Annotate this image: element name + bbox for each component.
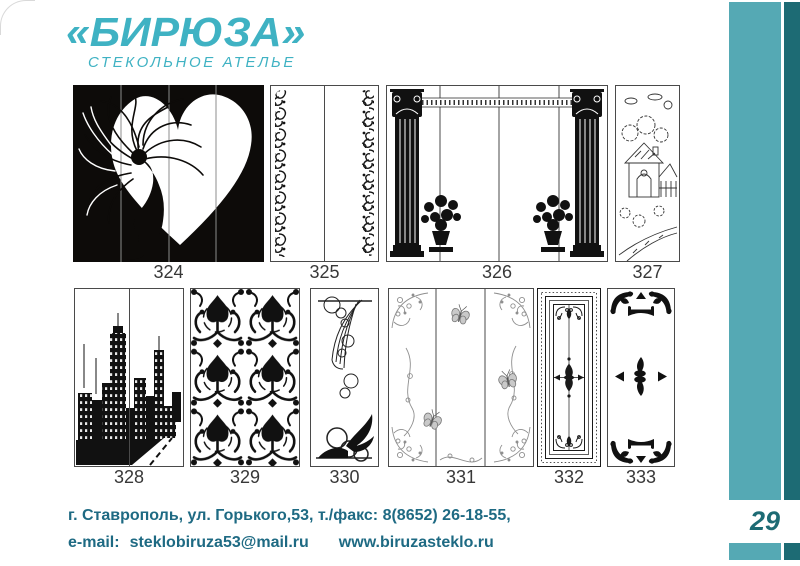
side-stripe-dark-teal <box>784 2 800 560</box>
brand-tagline: СТЕКОЛЬНОЕ АТЕЛЬЕ <box>88 54 296 71</box>
design-number-label: 330 <box>310 468 379 486</box>
design-325-tile: 325 <box>270 85 379 262</box>
contacts-line: e-mail:steklobiruza53@mail.ruwww.biruzas… <box>68 529 628 556</box>
side-stripe-teal <box>729 2 781 560</box>
design-326-tile: 326 <box>386 85 608 262</box>
design-329-image <box>190 288 300 467</box>
page-number: 29 <box>750 506 800 537</box>
design-number-label: 325 <box>270 263 379 281</box>
page-corner-decoration <box>0 0 35 35</box>
brand-name: «БИРЮЗА» <box>66 12 305 53</box>
design-331-tile: 331 <box>388 288 534 467</box>
design-328-tile: 328 <box>74 288 184 467</box>
design-327-image <box>615 85 680 262</box>
design-331-image <box>388 288 534 467</box>
design-326-image <box>386 85 608 262</box>
design-330-tile: 330 <box>310 288 379 467</box>
address-line: г. Ставрополь, ул. Горького,53, т./факс:… <box>68 502 628 529</box>
design-330-image <box>310 288 379 467</box>
design-327-tile: 327 <box>615 85 680 262</box>
design-332-tile: 332 <box>537 288 601 467</box>
design-number-label: 333 <box>607 468 675 486</box>
design-number-label: 332 <box>537 468 601 486</box>
email-label: e-mail: <box>68 534 120 551</box>
design-333-image <box>607 288 675 467</box>
website-url: www.biruzasteklo.ru <box>339 534 494 551</box>
footer-contact: г. Ставрополь, ул. Горького,53, т./факс:… <box>68 502 628 556</box>
design-number-label: 326 <box>386 263 608 281</box>
page-number-band: 29 <box>729 500 800 543</box>
design-number-label: 329 <box>190 468 300 486</box>
design-324-image <box>73 85 264 262</box>
design-332-image <box>537 288 601 467</box>
email-address: steklobiruza53@mail.ru <box>130 534 309 551</box>
design-number-label: 328 <box>74 468 184 486</box>
design-number-label: 324 <box>73 263 264 281</box>
design-325-image <box>270 85 379 262</box>
design-number-label: 331 <box>388 468 534 486</box>
design-329-tile: 329 <box>190 288 300 467</box>
design-number-label: 327 <box>615 263 680 281</box>
header-logo: «БИРЮЗА» СТЕКОЛЬНОЕ АТЕЛЬЕ <box>66 12 296 71</box>
design-324-tile: 324 <box>73 85 264 262</box>
design-333-tile: 333 <box>607 288 675 467</box>
design-328-image <box>74 288 184 467</box>
